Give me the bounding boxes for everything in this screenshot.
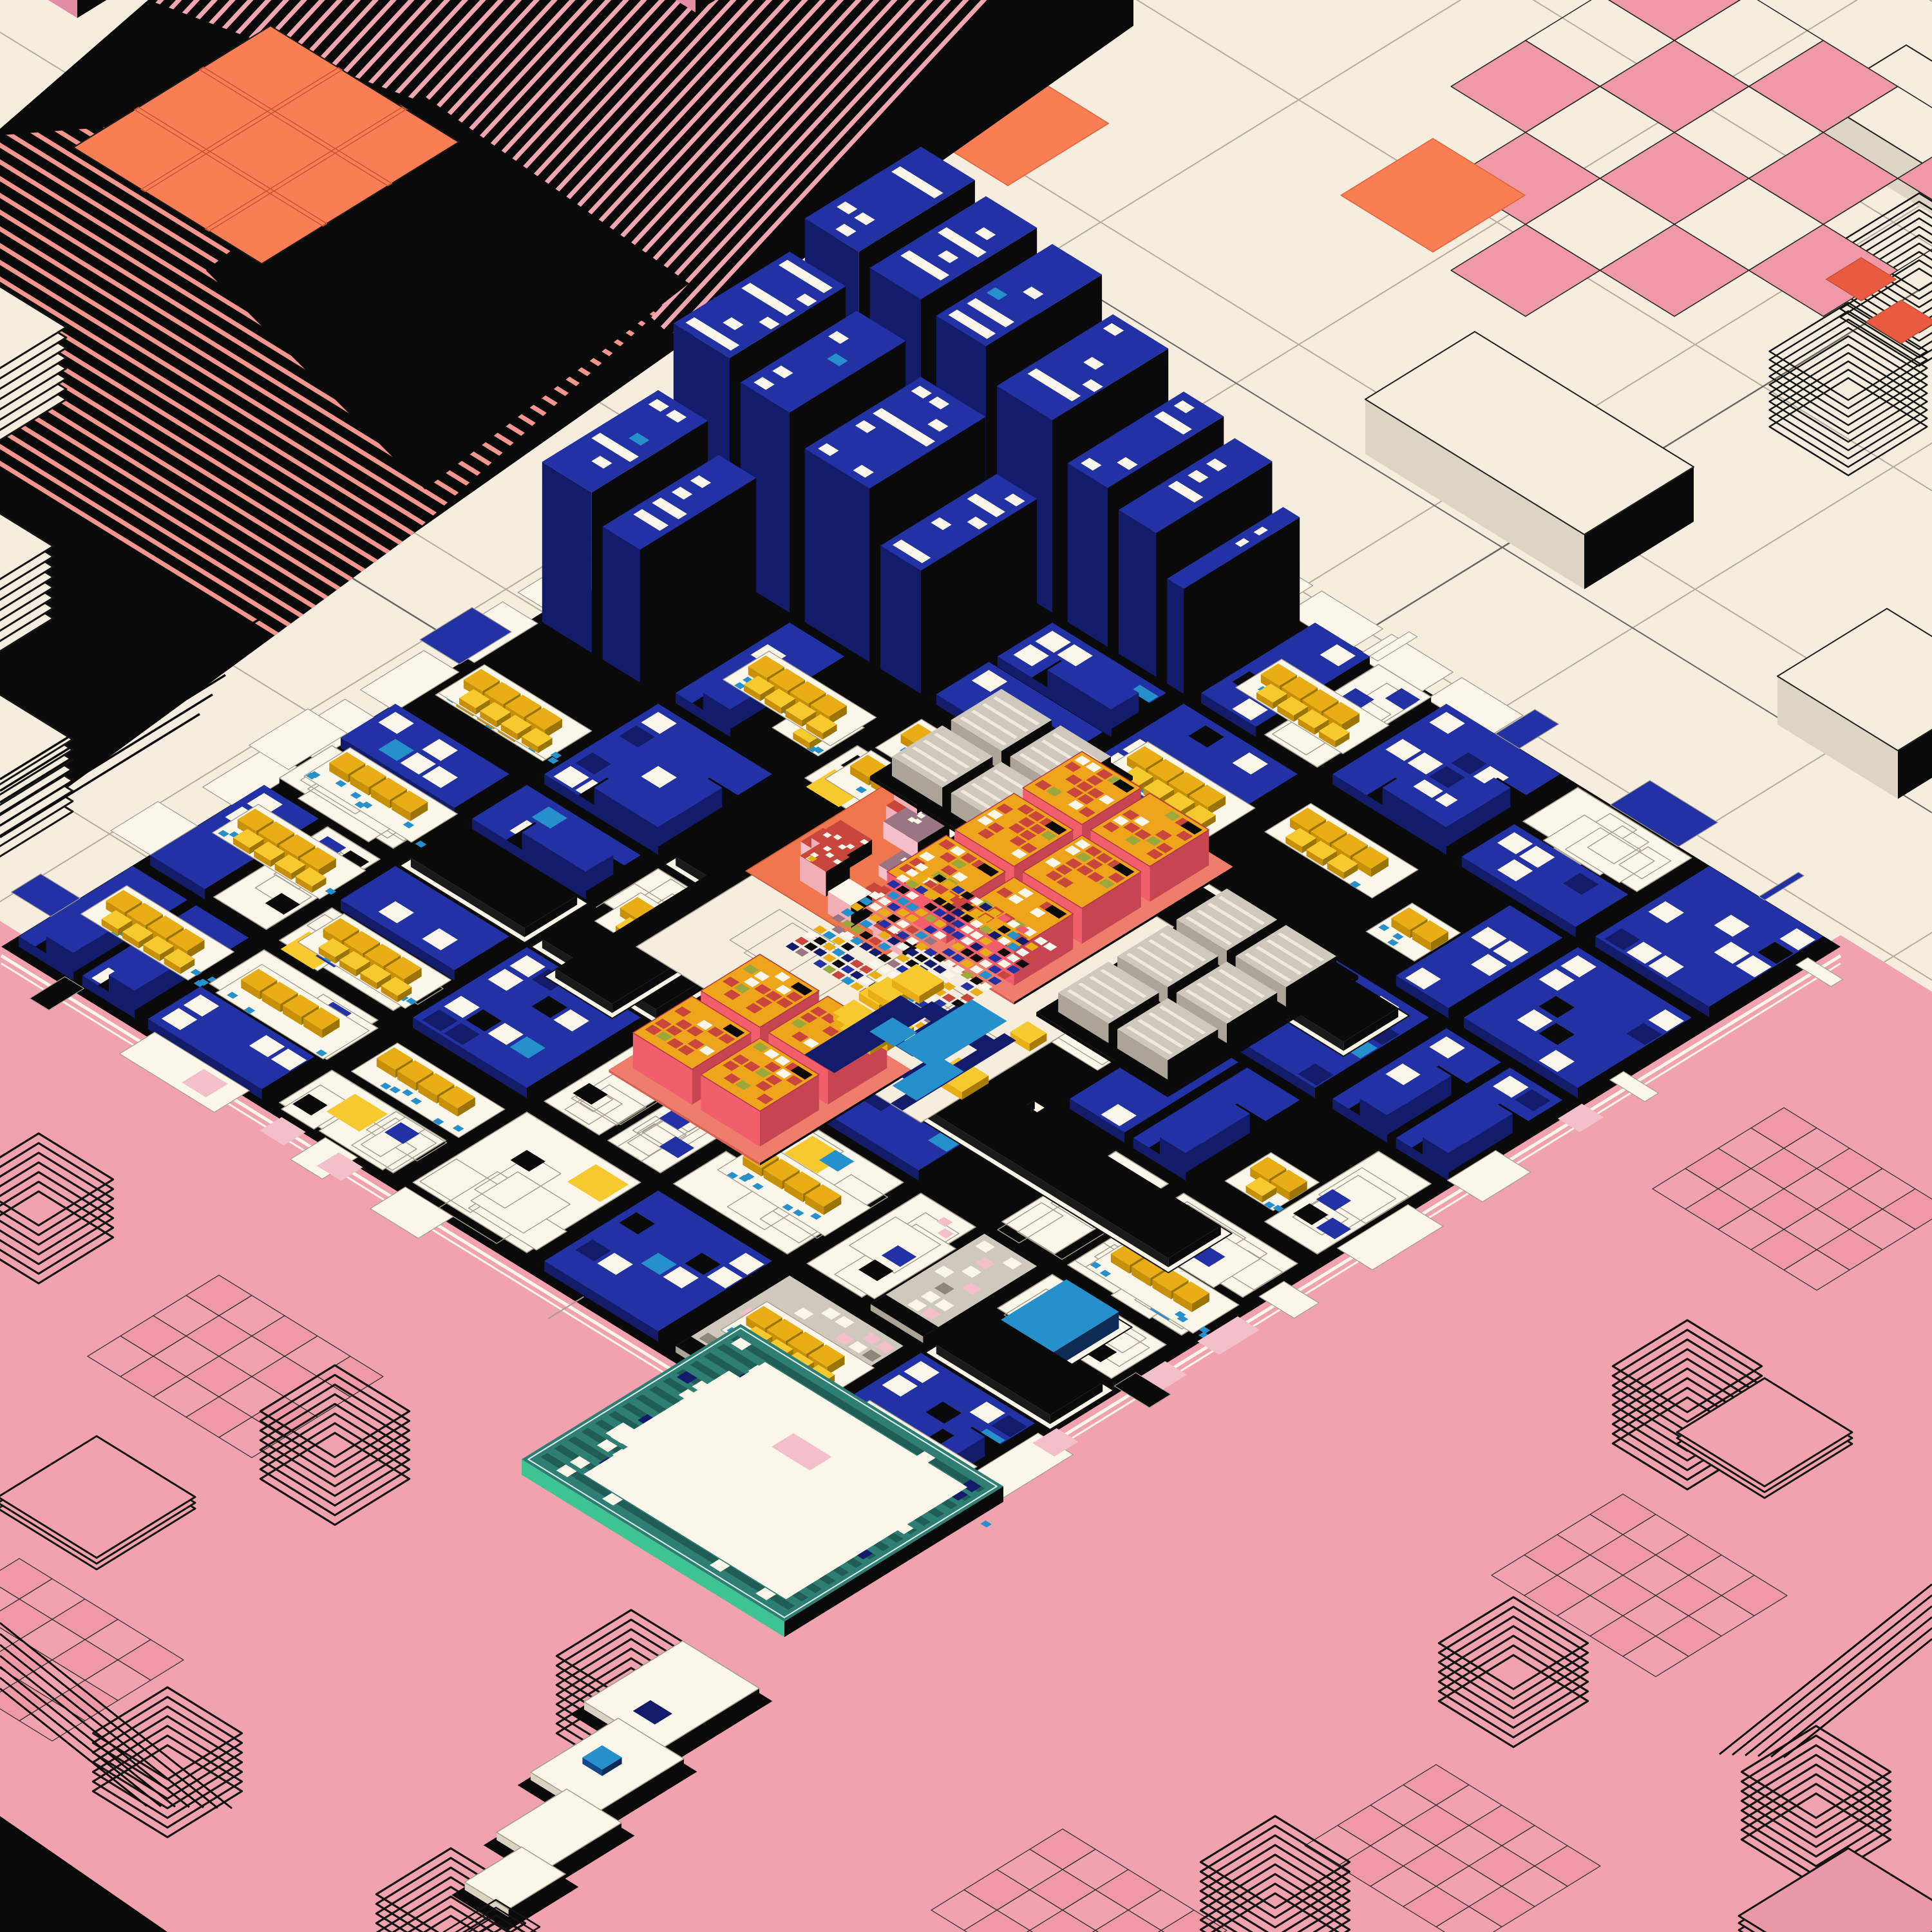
artwork-canvas	[0, 0, 1932, 1932]
isometric-scene	[0, 0, 1932, 1932]
